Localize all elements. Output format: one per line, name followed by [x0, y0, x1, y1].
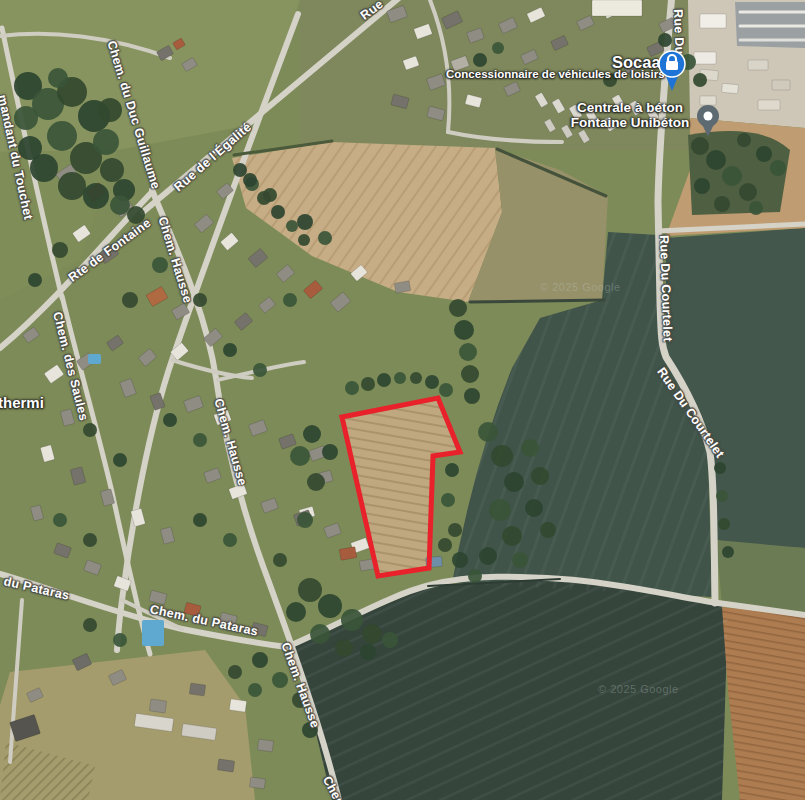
- map-tree: [318, 594, 342, 618]
- swimming-pool: [142, 620, 164, 646]
- map-tree: [459, 343, 477, 361]
- map-tree: [14, 106, 38, 130]
- map-tree: [286, 220, 298, 232]
- map-tree: [454, 320, 474, 340]
- map-tree: [223, 533, 237, 547]
- map-building: [229, 699, 246, 712]
- map-tree: [122, 292, 138, 308]
- map-tree: [345, 381, 359, 395]
- map-tree: [335, 639, 353, 657]
- map-tree: [307, 473, 325, 491]
- map-tree: [449, 299, 467, 317]
- map-tree: [694, 178, 710, 194]
- map-tree: [722, 546, 734, 558]
- map-tree: [658, 33, 672, 47]
- map-tree: [394, 372, 406, 384]
- map-tree: [441, 493, 455, 507]
- map-tree: [770, 160, 786, 176]
- map-building: [722, 83, 739, 93]
- map-tree: [502, 526, 522, 546]
- map-tree: [737, 133, 751, 147]
- map-tree: [263, 188, 277, 202]
- map-tree: [83, 618, 97, 632]
- map-tree: [290, 446, 310, 466]
- map-tree: [283, 293, 297, 307]
- map-building: [758, 100, 780, 110]
- map-tree: [193, 513, 207, 527]
- map-tree: [461, 365, 479, 383]
- map-tree: [452, 552, 468, 568]
- map-tree: [28, 273, 42, 287]
- map-building: [772, 80, 790, 90]
- map-tree: [52, 242, 68, 258]
- map-building: [249, 777, 265, 789]
- map-tree: [693, 73, 707, 87]
- map-tree: [228, 665, 242, 679]
- map-tree: [298, 234, 310, 246]
- map-road: [470, 300, 604, 302]
- map-tree: [360, 644, 376, 660]
- map-tree: [425, 375, 439, 389]
- map-tree: [410, 372, 422, 384]
- map-tree: [127, 206, 145, 224]
- map-tree: [297, 214, 313, 230]
- map-tree: [253, 363, 267, 377]
- map-tree: [292, 692, 308, 708]
- map-building: [394, 281, 411, 293]
- map-tree: [83, 423, 97, 437]
- map-tree: [521, 439, 539, 457]
- map-tree: [714, 196, 730, 212]
- map-tree: [53, 513, 67, 527]
- map-tree: [464, 388, 480, 404]
- map-tree: [382, 632, 398, 648]
- map-tree: [152, 257, 168, 273]
- map-building: [257, 739, 273, 752]
- map-tree: [18, 136, 42, 160]
- map-tree: [489, 499, 511, 521]
- map-tree: [248, 683, 262, 697]
- map-building: [694, 52, 716, 64]
- map-building: [217, 759, 234, 772]
- map-tree: [303, 425, 321, 443]
- map-tree: [110, 195, 130, 215]
- map-tree: [504, 472, 524, 492]
- map-tree: [718, 518, 730, 530]
- map-building: [149, 699, 167, 713]
- map-tree: [193, 293, 207, 307]
- map-tree: [298, 578, 322, 602]
- map-tree: [739, 183, 757, 201]
- map-tree: [603, 73, 617, 87]
- map-tree: [439, 383, 453, 397]
- map-tree: [83, 183, 109, 209]
- map-tree: [193, 433, 207, 447]
- map-tree: [756, 146, 772, 162]
- map-tree: [749, 201, 763, 215]
- map-building: [592, 0, 642, 16]
- map-tree: [98, 98, 122, 122]
- map-tree: [223, 343, 237, 357]
- map-tree: [714, 462, 726, 474]
- map-tree: [473, 53, 487, 67]
- satellite-map[interactable]: Rue Chem. du Duc Guillaume Rue de l'Égal…: [0, 0, 805, 800]
- map-tree: [540, 522, 556, 538]
- map-tree: [113, 633, 127, 647]
- map-tree: [318, 231, 332, 245]
- socaa-map-pin-icon[interactable]: [655, 49, 689, 95]
- map-building: [700, 14, 726, 28]
- map-tree: [273, 553, 287, 567]
- centrale-poi-pin-icon[interactable]: [694, 103, 722, 141]
- map-tree: [163, 413, 177, 427]
- map-tree: [491, 445, 513, 467]
- map-tree: [113, 453, 127, 467]
- map-tree: [302, 722, 318, 738]
- map-tree: [525, 499, 543, 517]
- map-building: [189, 683, 205, 696]
- map-tree: [479, 547, 497, 565]
- map-tree: [83, 533, 97, 547]
- map-tree: [286, 602, 306, 622]
- map-tree: [531, 467, 549, 485]
- map-field-residential-top: [300, 0, 690, 150]
- map-tree: [492, 42, 504, 54]
- map-tree: [716, 490, 728, 502]
- map-tree: [48, 68, 68, 88]
- map-tree: [438, 538, 452, 552]
- map-tree: [297, 512, 313, 528]
- map-tree: [252, 652, 268, 668]
- map-tree: [722, 166, 742, 186]
- map-tree: [377, 373, 391, 387]
- map-tree: [310, 624, 330, 644]
- map-tree: [448, 523, 462, 537]
- satellite-map-canvas[interactable]: [0, 0, 805, 800]
- map-tree: [468, 569, 482, 583]
- map-building: [748, 60, 768, 70]
- map-tree: [362, 624, 382, 644]
- map-tree: [272, 672, 288, 688]
- map-tree: [243, 173, 257, 187]
- swimming-pool: [88, 354, 101, 364]
- map-tree: [361, 377, 375, 391]
- map-tree: [322, 444, 338, 460]
- map-tree: [341, 609, 363, 631]
- map-building: [339, 547, 357, 561]
- map-tree: [58, 172, 86, 200]
- map-tree: [233, 163, 247, 177]
- map-tree: [512, 552, 528, 568]
- map-tree: [445, 463, 459, 477]
- map-tree: [100, 158, 124, 182]
- map-tree: [93, 129, 119, 155]
- map-tree: [706, 150, 726, 170]
- map-tree: [47, 121, 77, 151]
- map-tree: [271, 205, 285, 219]
- map-tree: [478, 422, 498, 442]
